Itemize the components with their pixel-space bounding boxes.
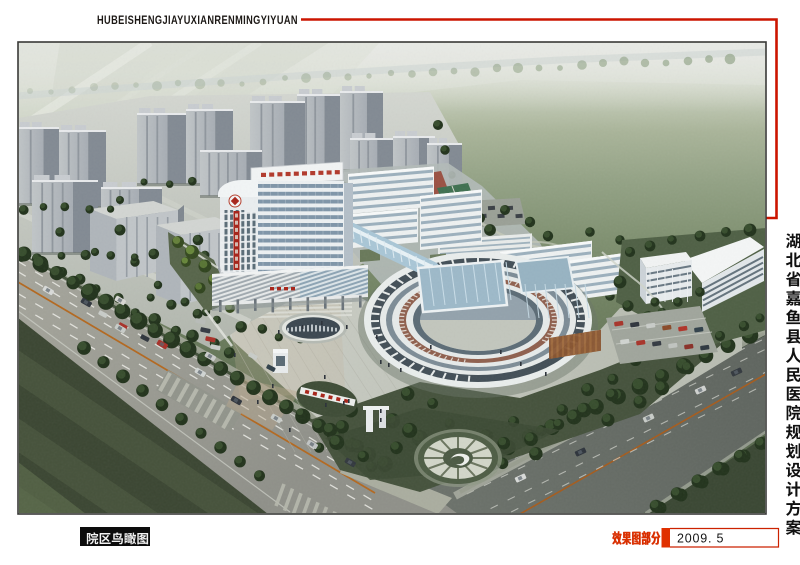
- svg-text:2009. 5: 2009. 5: [677, 532, 724, 546]
- svg-text:HUBEISHENGJIAYUXIANRENMINGYIYU: HUBEISHENGJIAYUXIANRENMINGYIYUAN: [97, 15, 298, 27]
